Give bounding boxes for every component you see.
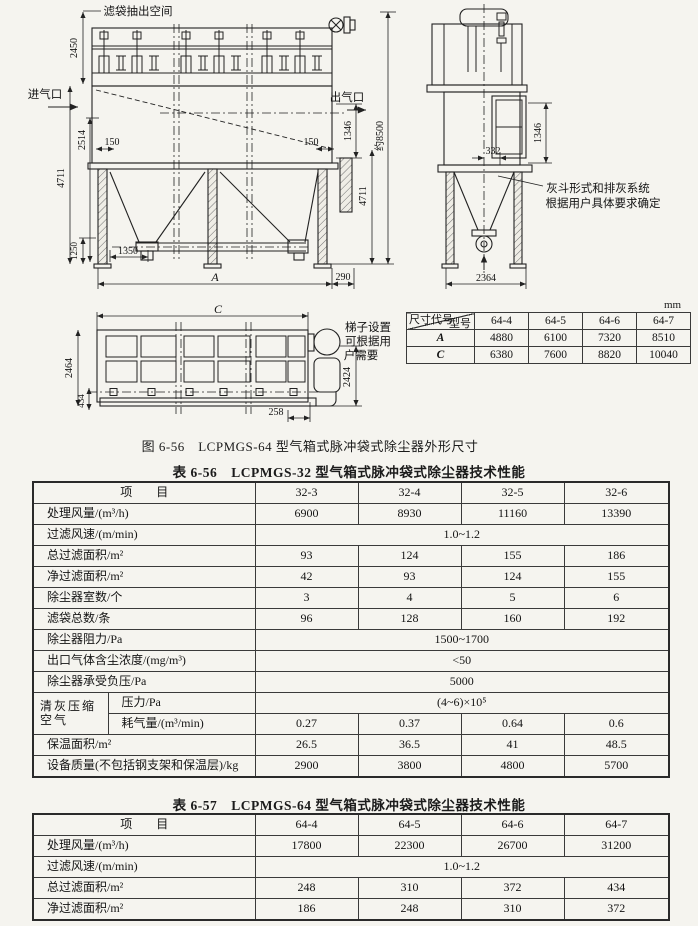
figure-caption: 图 6-56 LCPMGS-64 型气箱式脉冲袋式除尘器外形尺寸 [0, 436, 620, 455]
table-header-cell: 64-5 [358, 814, 461, 836]
table-cell: 26.5 [255, 735, 358, 756]
table-cell: 净过滤面积/m² [33, 567, 255, 588]
table-cell: 5700 [564, 756, 669, 778]
dim-434: 434 [76, 394, 86, 408]
table-cell: 总过滤面积/m² [33, 878, 255, 899]
table-cell: A [407, 330, 475, 347]
table-header-cell: 32-3 [255, 482, 358, 504]
table-cell: 5000 [255, 672, 669, 693]
table-cell: 124 [358, 546, 461, 567]
ladder-note-line3: 户需要 [344, 348, 379, 362]
table-cell: 设备质量(不包括钢支架和保温层)/kg [33, 756, 255, 778]
table-cell: 96 [255, 609, 358, 630]
table-cell: 10040 [637, 347, 691, 364]
table-cell: 17800 [255, 836, 358, 857]
table-cell: 除尘器承受负压/Pa [33, 672, 255, 693]
table-cell: 186 [564, 546, 669, 567]
table-cell: 372 [564, 899, 669, 921]
dim-2364: 2364 [476, 273, 496, 284]
dim-2424: 2424 [342, 367, 353, 387]
dim-2514: 2514 [77, 130, 88, 150]
table-cell: 128 [358, 609, 461, 630]
table-cell: 186 [255, 899, 358, 921]
table-cell: 310 [358, 878, 461, 899]
side-view [427, 4, 543, 274]
table-cell: <50 [255, 651, 669, 672]
table-cell: 248 [358, 899, 461, 921]
table-cell: 6 [564, 588, 669, 609]
dim-2464: 2464 [64, 358, 75, 378]
page: 滤袋抽出空间 2450 进气口 出气口 2514 150 150 4711 12… [0, 0, 698, 926]
table-cell: 3800 [358, 756, 461, 778]
size-table: 型号尺寸代号64-464-564-664-7A4880610073208510C… [406, 312, 691, 364]
table-cell: 7320 [583, 330, 637, 347]
table-header-cell: 项 目 [33, 814, 255, 836]
table-header-cell: 64-7 [564, 814, 669, 836]
table-cell: 160 [461, 609, 564, 630]
table-cell: 0.6 [564, 714, 669, 735]
dim-1346-side: 1346 [533, 123, 544, 143]
table-header-cell: 64-7 [637, 313, 691, 330]
table-cell: 7600 [529, 347, 583, 364]
dim-258: 258 [269, 407, 284, 418]
table-cell: 1.0~1.2 [255, 857, 669, 878]
outlet-label: 出气口 [330, 90, 365, 104]
table-cell: 过滤风速/(m/min) [33, 525, 255, 546]
ladder-note-line2: 可根据用 [345, 334, 391, 348]
table-cell: 192 [564, 609, 669, 630]
dim-C: C [214, 302, 223, 316]
table-header-cell: 64-6 [583, 313, 637, 330]
table-cell: 124 [461, 567, 564, 588]
table-cell: (4~6)×10⁵ [255, 693, 669, 714]
dim-1350: 1350 [118, 246, 138, 257]
dim-1346-front: 1346 [343, 121, 354, 141]
table-cell: 11160 [461, 504, 564, 525]
table-cell: 1500~1700 [255, 630, 669, 651]
table-cell: 处理风量/(m³/h) [33, 504, 255, 525]
dim-332: 332 [486, 146, 501, 157]
dim-1250: 1250 [69, 242, 79, 261]
bag-space-label: 滤袋抽出空间 [104, 4, 173, 18]
table-cell: 4880 [475, 330, 529, 347]
table-cell: 434 [564, 878, 669, 899]
hopper-note-line1: 灰斗形式和排灰系统 [546, 181, 650, 195]
table-cell: 0.37 [358, 714, 461, 735]
table-6-57: 项 目64-464-564-664-7处理风量/(m³/h)1780022300… [32, 813, 670, 921]
table-header-cell: 32-4 [358, 482, 461, 504]
table-cell: 滤袋总数/条 [33, 609, 255, 630]
table-cell: 除尘器室数/个 [33, 588, 255, 609]
table-cell: 248 [255, 878, 358, 899]
table-cell: 155 [461, 546, 564, 567]
figure-6-56-drawing: 滤袋抽出空间 2450 进气口 出气口 2514 150 150 4711 12… [0, 0, 698, 432]
dim-290: 290 [336, 272, 351, 283]
dim-8500: 约8500 [373, 121, 386, 151]
table-cell: 保温面积/m² [33, 735, 255, 756]
dim-2450: 2450 [69, 38, 80, 58]
table-6-57-title: 表 6-57 LCPMGS-64 型气箱式脉冲袋式除尘器技术性能 [0, 794, 698, 814]
table-cell: 310 [461, 899, 564, 921]
table-cell: 48.5 [564, 735, 669, 756]
table-cell: 6900 [255, 504, 358, 525]
table-header-cell: 32-6 [564, 482, 669, 504]
table-cell: 净过滤面积/m² [33, 899, 255, 921]
table-cell: 36.5 [358, 735, 461, 756]
table-cell: 0.27 [255, 714, 358, 735]
table-header-cell: 项 目 [33, 482, 255, 504]
table-header-cell: 64-4 [475, 313, 529, 330]
plan-view [88, 322, 340, 414]
table-6-56-title: 表 6-56 LCPMGS-32 型气箱式脉冲袋式除尘器技术性能 [0, 461, 698, 481]
table-cell: 除尘器阻力/Pa [33, 630, 255, 651]
table-cell: 41 [461, 735, 564, 756]
table-6-56: 项 目32-332-432-532-6处理风量/(m³/h)6900893011… [32, 481, 670, 778]
dim-150-right: 150 [304, 137, 319, 148]
dim-4711-right: 4711 [358, 186, 369, 206]
table-cell: 处理风量/(m³/h) [33, 836, 255, 857]
table-cell: 42 [255, 567, 358, 588]
table-cell: 清灰压缩 空气 [33, 693, 108, 735]
table-cell: 8510 [637, 330, 691, 347]
table-cell: 155 [564, 567, 669, 588]
diagonal-header-cell: 型号尺寸代号 [407, 313, 475, 330]
table-cell: 4800 [461, 756, 564, 778]
table-cell: 93 [255, 546, 358, 567]
table-cell: 8930 [358, 504, 461, 525]
table-cell: 13390 [564, 504, 669, 525]
table-cell: 6100 [529, 330, 583, 347]
table-cell: 6380 [475, 347, 529, 364]
dim-A: A [210, 270, 219, 284]
table-cell: 出口气体含尘浓度/(mg/m³) [33, 651, 255, 672]
inlet-label: 进气口 [28, 87, 63, 101]
table-cell: 1.0~1.2 [255, 525, 669, 546]
table-header-cell: 32-5 [461, 482, 564, 504]
table-cell: 过滤风速/(m/min) [33, 857, 255, 878]
table-cell: 5 [461, 588, 564, 609]
table-cell: 2900 [255, 756, 358, 778]
table-cell: 26700 [461, 836, 564, 857]
ladder-note-line1: 梯子设置 [345, 321, 391, 334]
dim-150-left: 150 [105, 137, 120, 148]
table-cell: 93 [358, 567, 461, 588]
table-header-cell: 64-6 [461, 814, 564, 836]
table-cell: 3 [255, 588, 358, 609]
table-cell: 22300 [358, 836, 461, 857]
plan-view-labels: C 2464 434 2424 258 梯子设置 可根据用 户需要 [64, 302, 391, 418]
table-cell: 压力/Pa [108, 693, 255, 714]
table-cell: 4 [358, 588, 461, 609]
table-cell: 0.64 [461, 714, 564, 735]
table-cell: 8820 [583, 347, 637, 364]
dim-4711-left: 4711 [56, 168, 67, 188]
table-cell: 372 [461, 878, 564, 899]
side-view-labels: 332 1346 2364 灰斗形式和排灰系统 根据用户具体要求确定 [476, 123, 661, 284]
size-table-unit: mm [664, 299, 681, 311]
table-cell: C [407, 347, 475, 364]
table-cell: 耗气量/(m³/min) [108, 714, 255, 735]
table-header-cell: 64-5 [529, 313, 583, 330]
hopper-note-line2: 根据用户具体要求确定 [546, 196, 661, 210]
table-cell: 31200 [564, 836, 669, 857]
table-cell: 总过滤面积/m² [33, 546, 255, 567]
table-header-cell: 64-4 [255, 814, 358, 836]
